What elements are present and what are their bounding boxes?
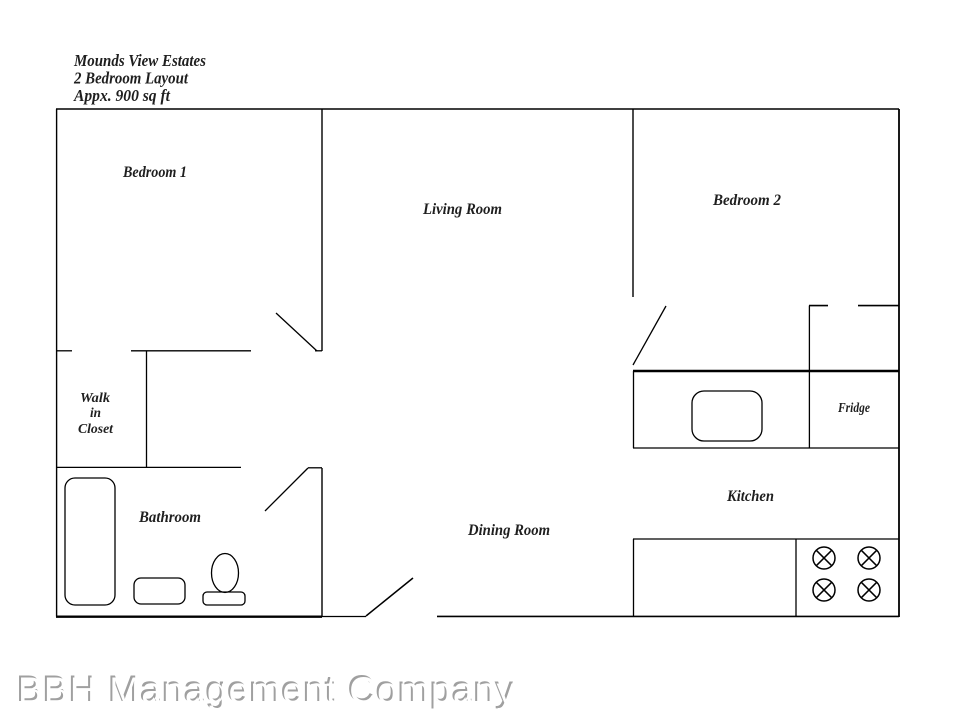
- svg-text:Living Room: Living Room: [422, 201, 502, 218]
- svg-text:in: in: [90, 405, 101, 420]
- svg-text:Fridge: Fridge: [837, 400, 870, 415]
- svg-text:Bedroom 2: Bedroom 2: [712, 192, 781, 209]
- svg-text:BBH Management Company: BBH Management Company: [18, 670, 516, 711]
- svg-text:Closet: Closet: [78, 421, 114, 436]
- svg-text:Walk: Walk: [80, 390, 110, 405]
- svg-text:Kitchen: Kitchen: [726, 488, 774, 505]
- svg-text:Bathroom: Bathroom: [138, 509, 201, 526]
- svg-text:Appx. 900 sq ft: Appx. 900 sq ft: [73, 86, 170, 105]
- svg-text:Dining Room: Dining Room: [467, 522, 550, 539]
- svg-text:Mounds View Estates: Mounds View Estates: [73, 51, 206, 70]
- svg-text:Bedroom 1: Bedroom 1: [122, 164, 187, 181]
- svg-text:2 Bedroom Layout: 2 Bedroom Layout: [73, 69, 188, 88]
